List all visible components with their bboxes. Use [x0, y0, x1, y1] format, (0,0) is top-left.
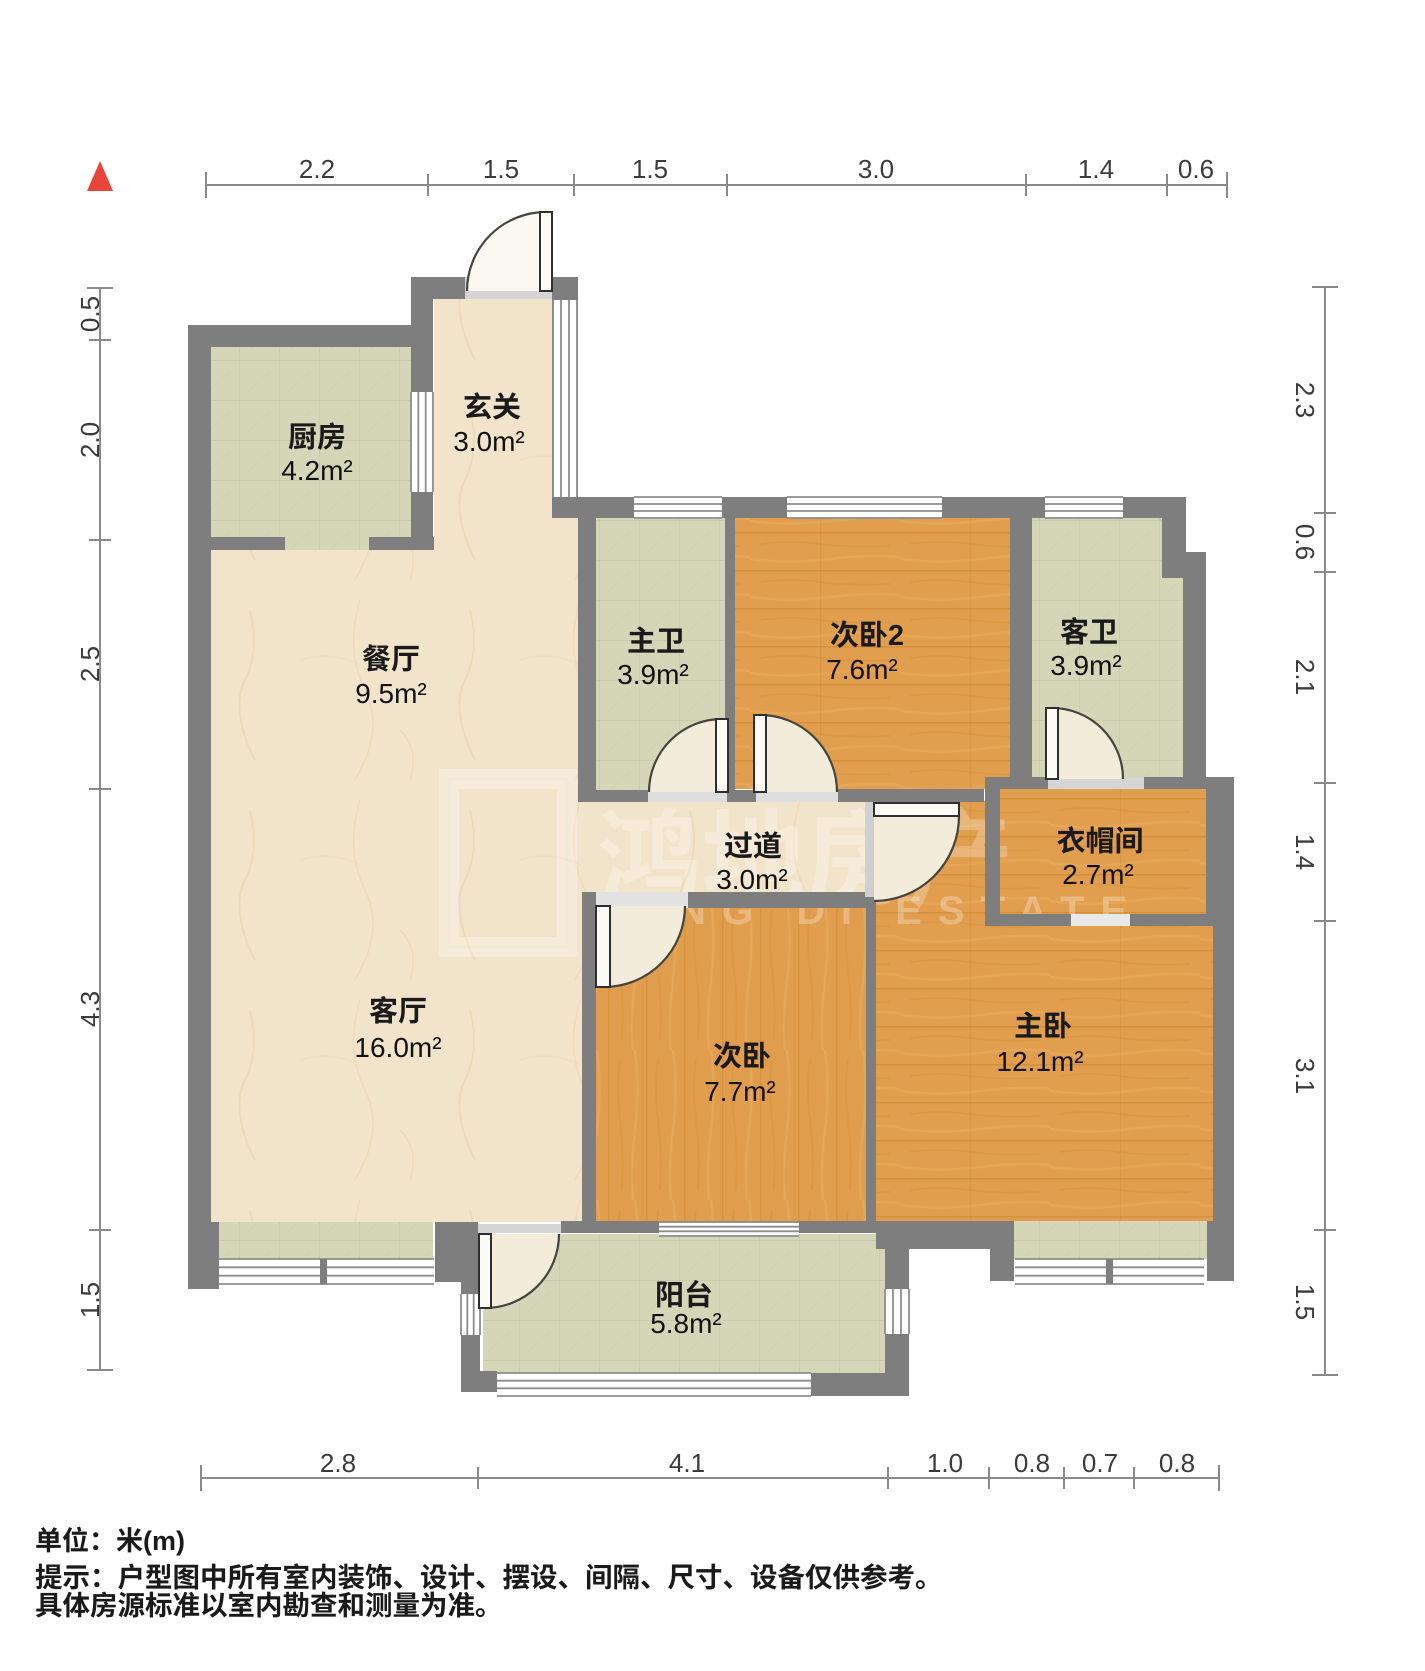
svg-text:0.7: 0.7 [1082, 1448, 1118, 1478]
svg-text:2.5: 2.5 [75, 646, 105, 682]
svg-text:9.5m²: 9.5m² [355, 678, 427, 709]
svg-text:2.0: 2.0 [75, 422, 105, 458]
svg-text:2.8: 2.8 [320, 1448, 356, 1478]
svg-text:3.1: 3.1 [1290, 1058, 1320, 1094]
svg-text:3.0: 3.0 [858, 154, 894, 184]
svg-text:2.7m²: 2.7m² [1062, 859, 1134, 890]
svg-text:0.8: 0.8 [1014, 1448, 1050, 1478]
svg-text:1.5: 1.5 [75, 1282, 105, 1318]
svg-text:2.1: 2.1 [1290, 659, 1320, 695]
svg-text:1.5: 1.5 [483, 154, 519, 184]
svg-text:7.7m²: 7.7m² [704, 1076, 776, 1107]
svg-text:(m): (m) [143, 1526, 185, 1556]
svg-text:2.2: 2.2 [299, 154, 335, 184]
svg-text:4.1: 4.1 [669, 1448, 705, 1478]
svg-text:3.0m²: 3.0m² [716, 864, 788, 895]
svg-text:4.2m²: 4.2m² [281, 455, 353, 486]
svg-text:12.1m²: 12.1m² [996, 1046, 1083, 1077]
svg-text:3.9m²: 3.9m² [1050, 650, 1122, 681]
svg-text:1.5: 1.5 [1290, 1284, 1320, 1320]
svg-text:1.0: 1.0 [927, 1448, 963, 1478]
svg-text:0.6: 0.6 [1290, 524, 1320, 560]
svg-text:0.5: 0.5 [75, 296, 105, 332]
svg-text:1.4: 1.4 [1290, 834, 1320, 870]
svg-text:0.6: 0.6 [1178, 154, 1214, 184]
svg-text:2.3: 2.3 [1290, 382, 1320, 418]
svg-text:5.8m²: 5.8m² [650, 1308, 722, 1339]
svg-text:1.5: 1.5 [632, 154, 668, 184]
svg-text:1.4: 1.4 [1078, 154, 1114, 184]
svg-text:7.6m²: 7.6m² [826, 654, 898, 685]
svg-text:3.0m²: 3.0m² [453, 426, 525, 457]
svg-text:2: 2 [888, 620, 904, 652]
svg-text:0.8: 0.8 [1159, 1448, 1195, 1478]
svg-text:16.0m²: 16.0m² [354, 1032, 441, 1063]
svg-text:4.3: 4.3 [75, 991, 105, 1027]
svg-text:3.9m²: 3.9m² [617, 659, 689, 690]
